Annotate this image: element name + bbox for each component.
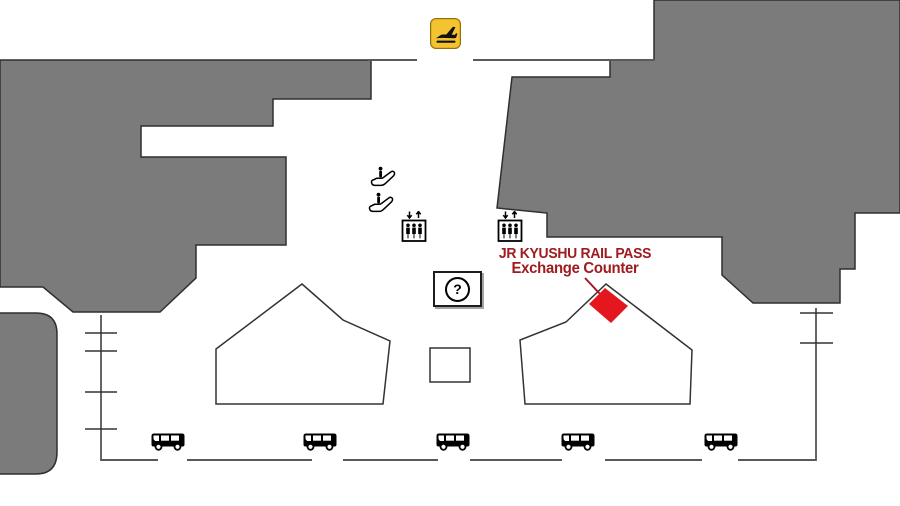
left-building (0, 60, 371, 312)
bus-icon (702, 432, 740, 457)
arrivals-icon (430, 18, 461, 49)
bus-icon (434, 432, 472, 457)
structure-left-outline (216, 284, 390, 404)
airplane-glyph (434, 22, 458, 46)
elevator-icon (497, 211, 523, 247)
rail-pass-label: JR KYUSHU RAIL PASS Exchange Counter (477, 246, 672, 277)
terminal-map: ? JR KYUSHU RAIL PASS Exchange Counter (0, 0, 900, 506)
marker-leader-line (585, 278, 601, 295)
elevator-icon (401, 211, 427, 247)
question-mark: ? (445, 277, 470, 302)
right-curb (800, 308, 833, 461)
center-box (430, 348, 470, 382)
escalator-icon (368, 192, 396, 219)
rail-pass-label-line2: Exchange Counter (477, 261, 672, 277)
escalator-icon (370, 166, 398, 193)
bus-icon (149, 432, 187, 457)
median-island (0, 313, 57, 474)
rail-pass-label-line1: JR KYUSHU RAIL PASS (477, 246, 672, 261)
left-curb (85, 315, 117, 461)
bus-icon (301, 432, 339, 457)
bus-icon (559, 432, 597, 457)
information-icon: ? (433, 271, 482, 307)
terminal-floorplan (0, 0, 900, 506)
